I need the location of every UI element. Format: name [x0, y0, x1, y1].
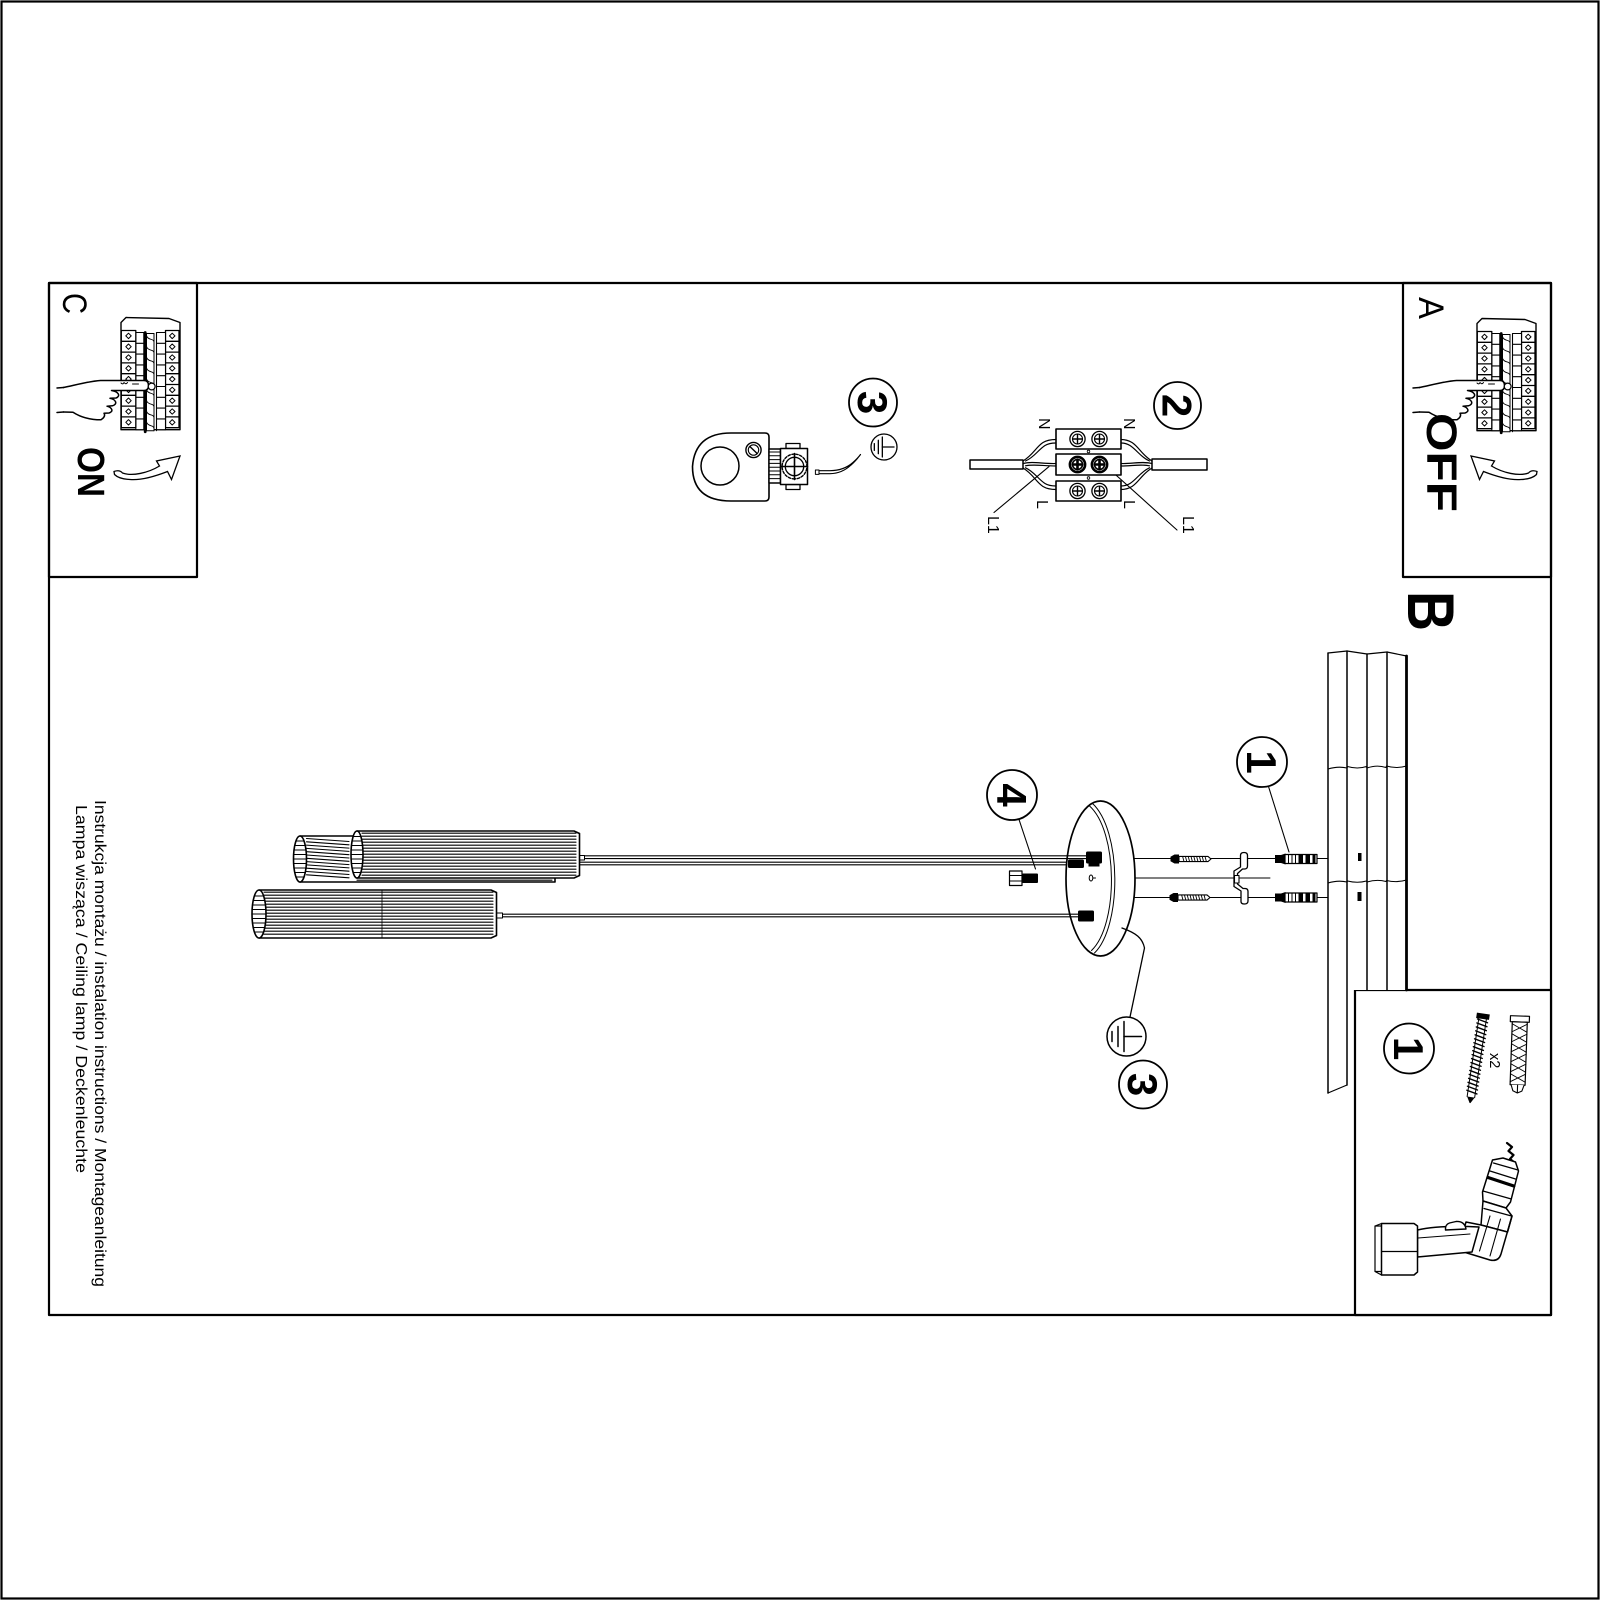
svg-text:L: L [1033, 500, 1050, 509]
svg-text:3: 3 [849, 391, 896, 414]
svg-text:ON: ON [69, 447, 111, 497]
svg-text:L1: L1 [984, 516, 1001, 534]
svg-text:B: B [1394, 591, 1468, 631]
svg-text:3: 3 [1119, 1073, 1166, 1096]
svg-text:x2: x2 [1486, 1053, 1502, 1068]
svg-text:C: C [55, 293, 93, 314]
svg-text:N: N [1035, 418, 1052, 430]
svg-text:Lampa wisząca / Ceiling lamp /: Lampa wisząca / Ceiling lamp / Deckenleu… [72, 805, 89, 1173]
svg-text:L1: L1 [1179, 516, 1196, 534]
svg-text:1: 1 [1385, 1037, 1432, 1060]
svg-text:4: 4 [988, 783, 1035, 807]
svg-text:OFF: OFF [1417, 413, 1465, 512]
svg-text:2: 2 [1153, 394, 1200, 417]
svg-text:Instrukcja montażu / instalati: Instrukcja montażu / instalation instruc… [91, 800, 108, 1287]
svg-text:N: N [1120, 418, 1137, 430]
svg-text:A: A [1411, 297, 1450, 320]
svg-text:L: L [1120, 500, 1137, 509]
svg-text:1: 1 [1238, 750, 1285, 773]
